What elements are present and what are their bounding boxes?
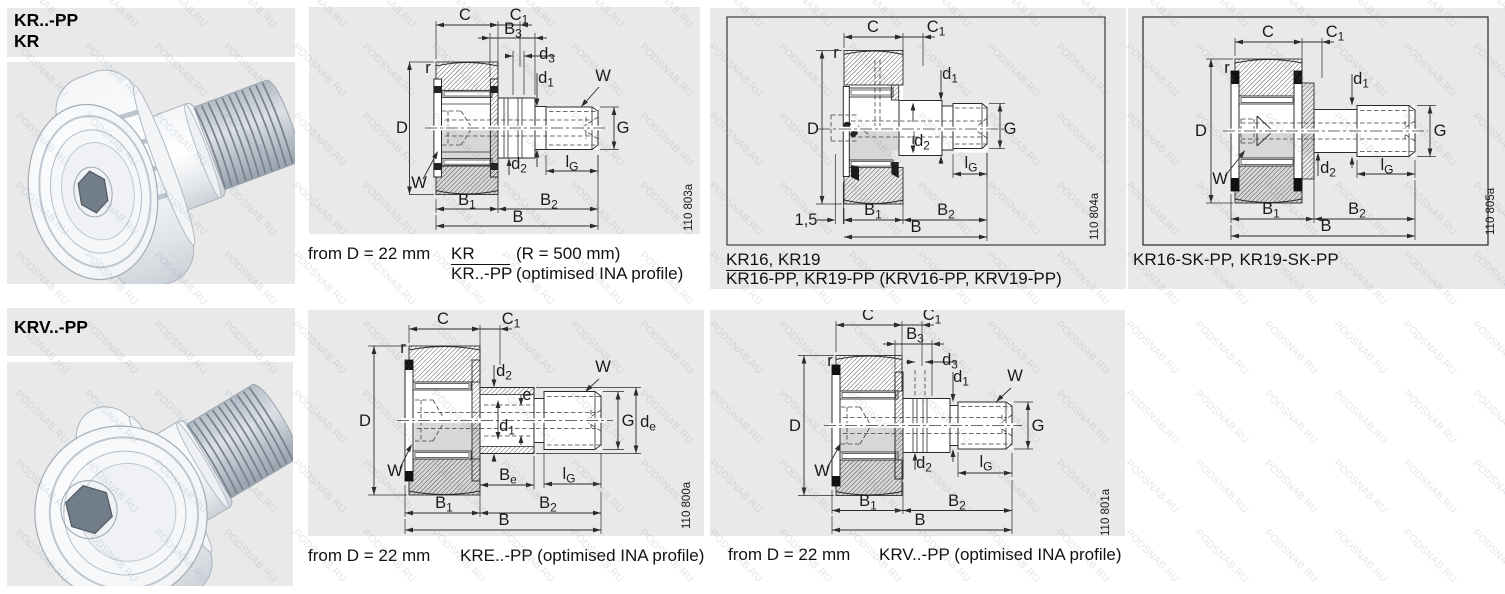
svg-text:PODSNAB.RU: PODSNAB.RU [1262,319,1320,377]
svg-text:PODSNAB.RU: PODSNAB.RU [1470,319,1505,377]
svg-text:C: C [437,310,449,328]
svg-text:PODSNAB.RU: PODSNAB.RU [1262,389,1320,447]
svg-text:lG: lG [964,154,977,175]
svg-text:B2: B2 [539,494,557,515]
svg-text:C: C [459,7,471,24]
svg-text:PODSNAB.RU: PODSNAB.RU [1193,389,1251,447]
svg-text:G: G [1032,417,1045,435]
svg-text:110 801a: 110 801a [1100,488,1112,536]
svg-text:G: G [617,119,630,137]
svg-text:110 803a: 110 803a [683,183,695,231]
svg-text:D: D [359,412,371,430]
svg-text:C: C [1262,23,1274,41]
svg-text:W: W [595,358,611,376]
svg-text:110 800a: 110 800a [681,481,693,529]
svg-text:D: D [396,119,408,137]
svg-text:PODSNAB.RU: PODSNAB.RU [1123,528,1181,586]
svg-text:r: r [833,44,839,62]
svg-text:1,5: 1,5 [795,211,818,229]
svg-text:r: r [827,352,833,370]
svg-text:lG: lG [1380,156,1393,177]
svg-text:B2: B2 [948,492,966,513]
svg-text:PODSNAB.RU: PODSNAB.RU [1401,389,1459,447]
svg-text:PODSNAB.RU: PODSNAB.RU [1123,319,1181,377]
svg-text:PODSNAB.RU: PODSNAB.RU [1262,528,1320,586]
svg-text:110 805a: 110 805a [1485,187,1497,235]
svg-text:PODSNAB.RU: PODSNAB.RU [1193,458,1251,516]
svg-text:B3: B3 [906,325,924,346]
svg-text:PODSNAB.RU: PODSNAB.RU [1401,319,1459,377]
svg-text:C1: C1 [927,18,946,39]
svg-text:de: de [640,413,656,434]
svg-text:d1: d1 [1353,70,1369,91]
svg-text:C1: C1 [1326,23,1345,44]
svg-text:lG: lG [979,453,992,474]
svg-text:W: W [387,462,403,480]
svg-text:lG: lG [562,465,575,486]
svg-text:PODSNAB.RU: PODSNAB.RU [1331,528,1389,586]
svg-text:PODSNAB.RU: PODSNAB.RU [1123,458,1181,516]
svg-text:d2: d2 [1320,159,1336,180]
svg-text:PODSNAB.RU: PODSNAB.RU [1470,458,1505,516]
svg-text:D: D [807,120,819,138]
svg-text:d2: d2 [916,454,932,475]
svg-text:C: C [862,310,874,324]
svg-text:PODSNAB.RU: PODSNAB.RU [1331,319,1389,377]
svg-text:PODSNAB.RU: PODSNAB.RU [1193,528,1251,586]
svg-text:r: r [400,339,406,357]
svg-text:B: B [1320,217,1331,235]
svg-text:B2: B2 [540,191,558,212]
svg-text:PODSNAB.RU: PODSNAB.RU [1123,389,1181,447]
svg-text:B1: B1 [435,494,453,515]
svg-text:PODSNAB.RU: PODSNAB.RU [1262,458,1320,516]
svg-text:r: r [1224,59,1230,77]
svg-text:B: B [512,208,523,226]
svg-text:e: e [522,386,531,404]
svg-text:B: B [914,511,925,529]
svg-text:C: C [867,18,879,36]
svg-text:G: G [1004,120,1017,138]
svg-text:d3: d3 [539,45,555,66]
svg-text:PODSNAB.RU: PODSNAB.RU [1331,458,1389,516]
svg-text:PODSNAB.RU: PODSNAB.RU [1401,458,1459,516]
svg-text:PODSNAB.RU: PODSNAB.RU [1470,389,1505,447]
svg-text:G: G [1434,122,1447,140]
svg-text:W: W [1007,367,1023,385]
svg-text:110 804a: 110 804a [1089,192,1101,240]
svg-text:lG: lG [565,153,578,174]
svg-text:W: W [1212,170,1228,188]
svg-text:B2: B2 [1348,200,1366,221]
svg-text:d2: d2 [496,362,512,383]
svg-text:Be: Be [499,466,517,487]
svg-text:PODSNAB.RU: PODSNAB.RU [1193,319,1251,377]
svg-text:W: W [411,174,427,192]
svg-text:D: D [1195,122,1207,140]
svg-text:W: W [595,67,611,85]
svg-text:PODSNAB.RU: PODSNAB.RU [1401,528,1459,586]
svg-text:G: G [622,412,635,430]
svg-text:d1: d1 [953,368,969,389]
svg-text:d1: d1 [538,69,554,90]
svg-text:B2: B2 [937,201,955,222]
svg-text:PODSNAB.RU: PODSNAB.RU [1331,389,1389,447]
svg-text:d1: d1 [942,65,958,86]
svg-text:B: B [498,511,509,529]
svg-text:W: W [814,462,830,480]
svg-text:B: B [910,218,921,236]
svg-text:D: D [789,417,801,435]
svg-text:C1: C1 [502,310,521,331]
svg-text:PODSNAB.RU: PODSNAB.RU [1470,528,1505,586]
